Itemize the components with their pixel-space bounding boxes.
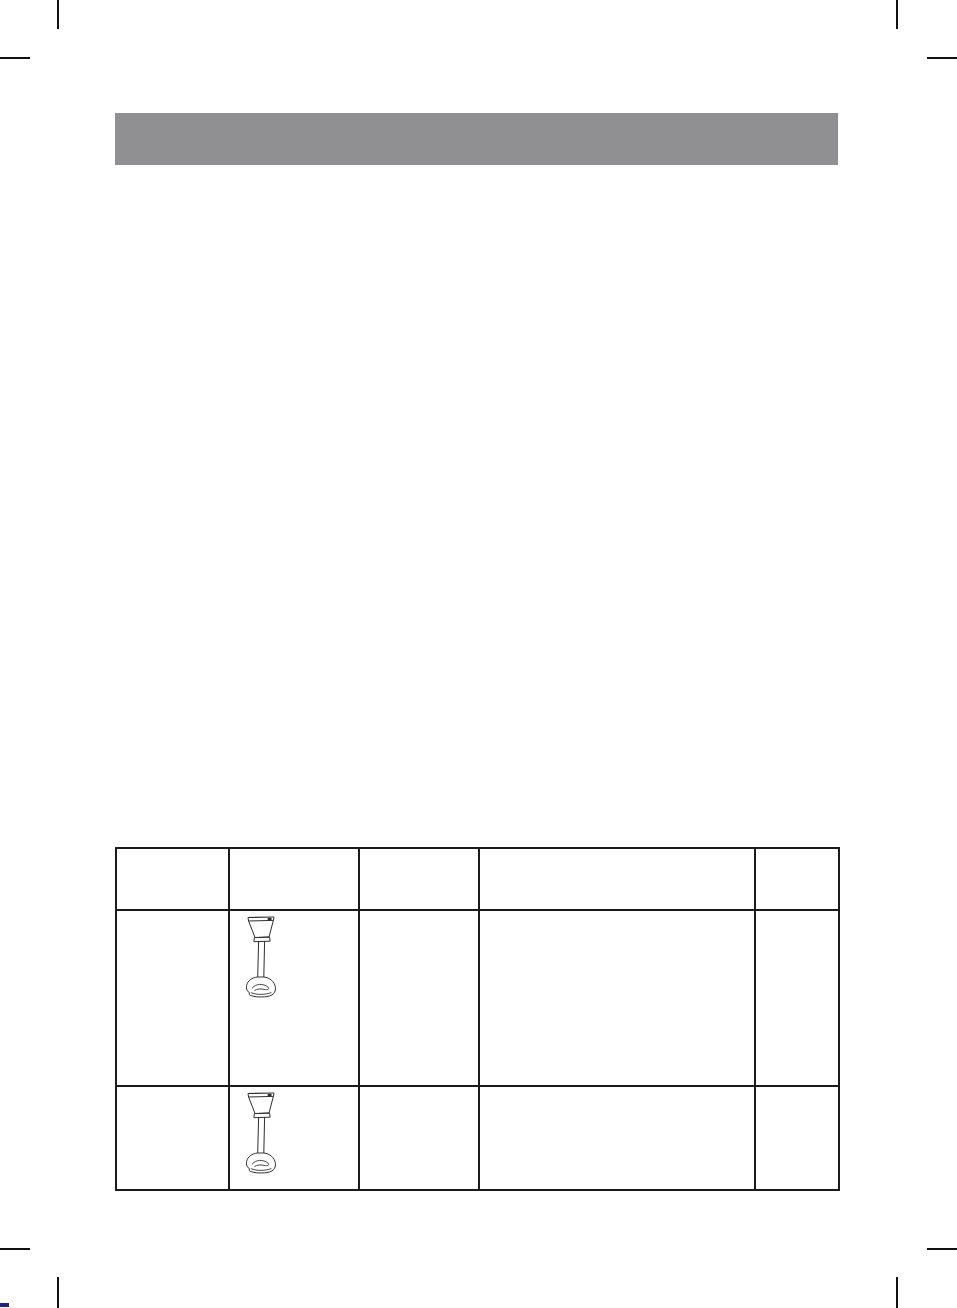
table-header-row [116,848,839,910]
table-cell-text [117,1087,228,1095]
parts-table [115,847,840,1191]
table-cell [755,1086,839,1190]
table-cell [359,1086,479,1190]
crop-mark-top-left-vertical [57,0,59,29]
table-cell-product-image [229,910,359,1086]
table-cell [116,1086,229,1190]
header-cell-text [117,849,228,857]
table-cell-text [480,911,754,919]
crop-mark-bottom-left-vertical [57,1277,59,1308]
crop-mark-top-right-horizontal [927,57,957,59]
page-canvas [0,0,957,1308]
crop-mark-bottom-left-horizontal [0,1248,30,1250]
header-cell-text [756,849,838,857]
table-cell-text [360,911,478,919]
header-cell-1 [116,848,229,910]
header-bar [115,113,838,165]
product-illustration [230,1087,358,1179]
crop-mark-bottom-right-horizontal [927,1248,957,1250]
header-cell-5 [755,848,839,910]
table-row [116,1086,839,1190]
table-cell-product-image [229,1086,359,1190]
table-cell-text [756,1087,838,1095]
table-row [116,910,839,1086]
hand-blender-icon [244,1091,278,1179]
table-cell [116,910,229,1086]
header-cell-4 [479,848,755,910]
table-cell-text [756,911,838,919]
table-cell-text [117,911,228,919]
table-cell-text [360,1087,478,1095]
header-cell-text [360,849,478,857]
header-cell-3 [359,848,479,910]
table-cell [479,1086,755,1190]
crop-mark-top-left-horizontal [0,57,30,59]
table-cell [755,910,839,1086]
table-cell [359,910,479,1086]
header-cell-text [230,849,358,857]
header-cell-2 [229,848,359,910]
hand-blender-icon [244,915,278,1003]
table-cell [479,910,755,1086]
product-illustration [230,911,358,1003]
registration-mark [0,1303,9,1307]
header-cell-text [480,849,754,857]
crop-mark-bottom-right-vertical [896,1277,898,1308]
crop-mark-top-right-vertical [896,0,898,29]
table-cell-text [480,1087,754,1095]
